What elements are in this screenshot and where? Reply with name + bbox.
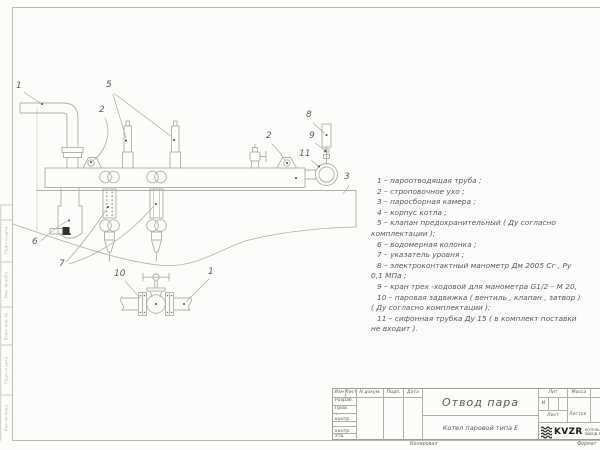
callout-steam-chamber: 3 — [344, 173, 350, 182]
legend-line: 4 – корпус котла ; — [371, 208, 600, 219]
legend-line: ( Ду согласно комплектации ); — [371, 303, 600, 314]
org-name: KVZR — [554, 427, 583, 437]
tb-col-izm: Изм — [333, 389, 346, 398]
tb-lit-cell — [549, 398, 559, 411]
tb-title: Отвод пара — [423, 389, 539, 416]
callout-pipe-bottom: 1 — [208, 268, 214, 277]
tb-row-razrab: Разраб. — [333, 398, 357, 406]
tb-row-nkontr: Н. контр. — [333, 427, 357, 434]
tb-row-prov: Пров. — [333, 406, 357, 414]
legend-line: 0,1 МПа ; — [371, 271, 600, 282]
lifting-lug-left — [83, 158, 102, 169]
callout-water-column: 6 — [32, 238, 38, 247]
title-block: Изм Лист N докум. Подп. Дата Разраб. Про… — [332, 388, 600, 440]
tb-grid — [357, 398, 384, 441]
parts-legend: 1 – пароотводящая труба ; 2 – строповочн… — [371, 176, 600, 335]
tb-row-tkontr: Т. контр. — [333, 414, 357, 422]
tb-col-podp: Подп. — [384, 389, 404, 398]
tb-row-utv: Утв. — [333, 434, 357, 441]
callout-steam-pipe: 1 — [16, 82, 22, 91]
legend-line: 9 – кран трех -ходовой для манометра G1/… — [371, 282, 600, 293]
legend-line: 5 – клапан предохранительный ( Ду соглас… — [371, 218, 600, 229]
tb-col-list: Лист — [346, 389, 357, 398]
callout-three-way-cock: 9 — [309, 132, 315, 141]
level-gauge-2 — [147, 171, 167, 261]
legend-line: не входит ). — [371, 324, 600, 335]
callout-lug-right: 2 — [266, 132, 272, 141]
tb-grid — [384, 398, 404, 441]
steam-outlet-pipe — [20, 103, 83, 168]
legend-line: 2 – строповочное ухо ; — [371, 187, 600, 198]
margin-label: Подп. и дата — [4, 351, 9, 391]
legend-line: 6 – водомерная колонка ; — [371, 240, 600, 251]
callout-siphon-tube: 11 — [299, 150, 310, 159]
safety-valve-left — [123, 121, 134, 168]
steam-drum — [45, 168, 305, 188]
legend-line: 1 – пароотводящая труба ; — [371, 176, 600, 187]
callout-level-gauge: 7 — [59, 260, 65, 269]
kopiroval-note: Копировал — [410, 442, 437, 447]
tb-grid — [404, 398, 423, 441]
callout-manometer: 8 — [306, 111, 312, 120]
legend-line: 10 – паровая задвижка ( вентиль , клапан… — [371, 293, 600, 304]
callout-safety-valves: 5 — [106, 81, 112, 90]
level-gauge-1 — [100, 171, 120, 261]
legend-line: комплектации ); — [371, 229, 600, 240]
drawing-sheet: 1 5 2 2 8 9 11 3 6 7 10 1 1 – пароотводя… — [0, 0, 600, 450]
steam-valve-assembly — [121, 274, 192, 316]
margin-label: Инв. № дубл. — [4, 265, 9, 305]
tb-col-data: Дата — [404, 389, 423, 398]
water-column — [50, 188, 82, 238]
boiler-body — [13, 107, 356, 266]
tb-masshtab-value — [591, 398, 600, 423]
tb-masshtab-header: Масштаб — [591, 389, 600, 398]
legend-line: 3 – паросборная камера ; — [371, 197, 600, 208]
kvzr-logo-mark — [541, 426, 552, 439]
tb-col-ndok: N докум. — [357, 389, 384, 398]
margin-label: Взам. инв. № — [4, 307, 9, 347]
legend-line: 7 – указатель уровня ; — [371, 250, 600, 261]
margin-label: Инв. № подл. — [4, 398, 9, 438]
sampling-cock — [250, 145, 266, 169]
tb-subtitle: Котел паровой типа Е — [423, 416, 539, 441]
tb-listov-label: Листов — [569, 412, 586, 417]
leader-lines — [24, 92, 349, 302]
callout-steam-valve: 10 — [114, 270, 125, 279]
margin-label: Подп. и дата — [4, 221, 9, 261]
format-note: Формат — [577, 442, 596, 447]
tb-lit-cell — [559, 398, 568, 411]
legend-line: 8 – электроконтактный манометр Дм 2005 С… — [371, 261, 600, 272]
tb-lit-value: И — [539, 398, 549, 411]
tb-lit-header: Лит — [539, 389, 568, 398]
safety-valve-right — [170, 121, 181, 168]
leader-markers — [41, 103, 328, 305]
tb-list-label: Лист — [539, 411, 568, 423]
tb-organization: KVZR КОТЕЛЬНЫЙ ЗАВОД РО — [539, 423, 600, 441]
org-line2: ЗАВОД РО — [585, 432, 600, 436]
callout-lug-left: 2 — [99, 106, 105, 115]
tb-massa-header: Масса — [568, 389, 591, 398]
tb-massa-value — [568, 398, 591, 423]
legend-line: 11 – сифонная трубка Ду 15 ( в комплект … — [371, 314, 600, 325]
org-lines: КОТЕЛЬНЫЙ ЗАВОД РО — [585, 428, 600, 437]
